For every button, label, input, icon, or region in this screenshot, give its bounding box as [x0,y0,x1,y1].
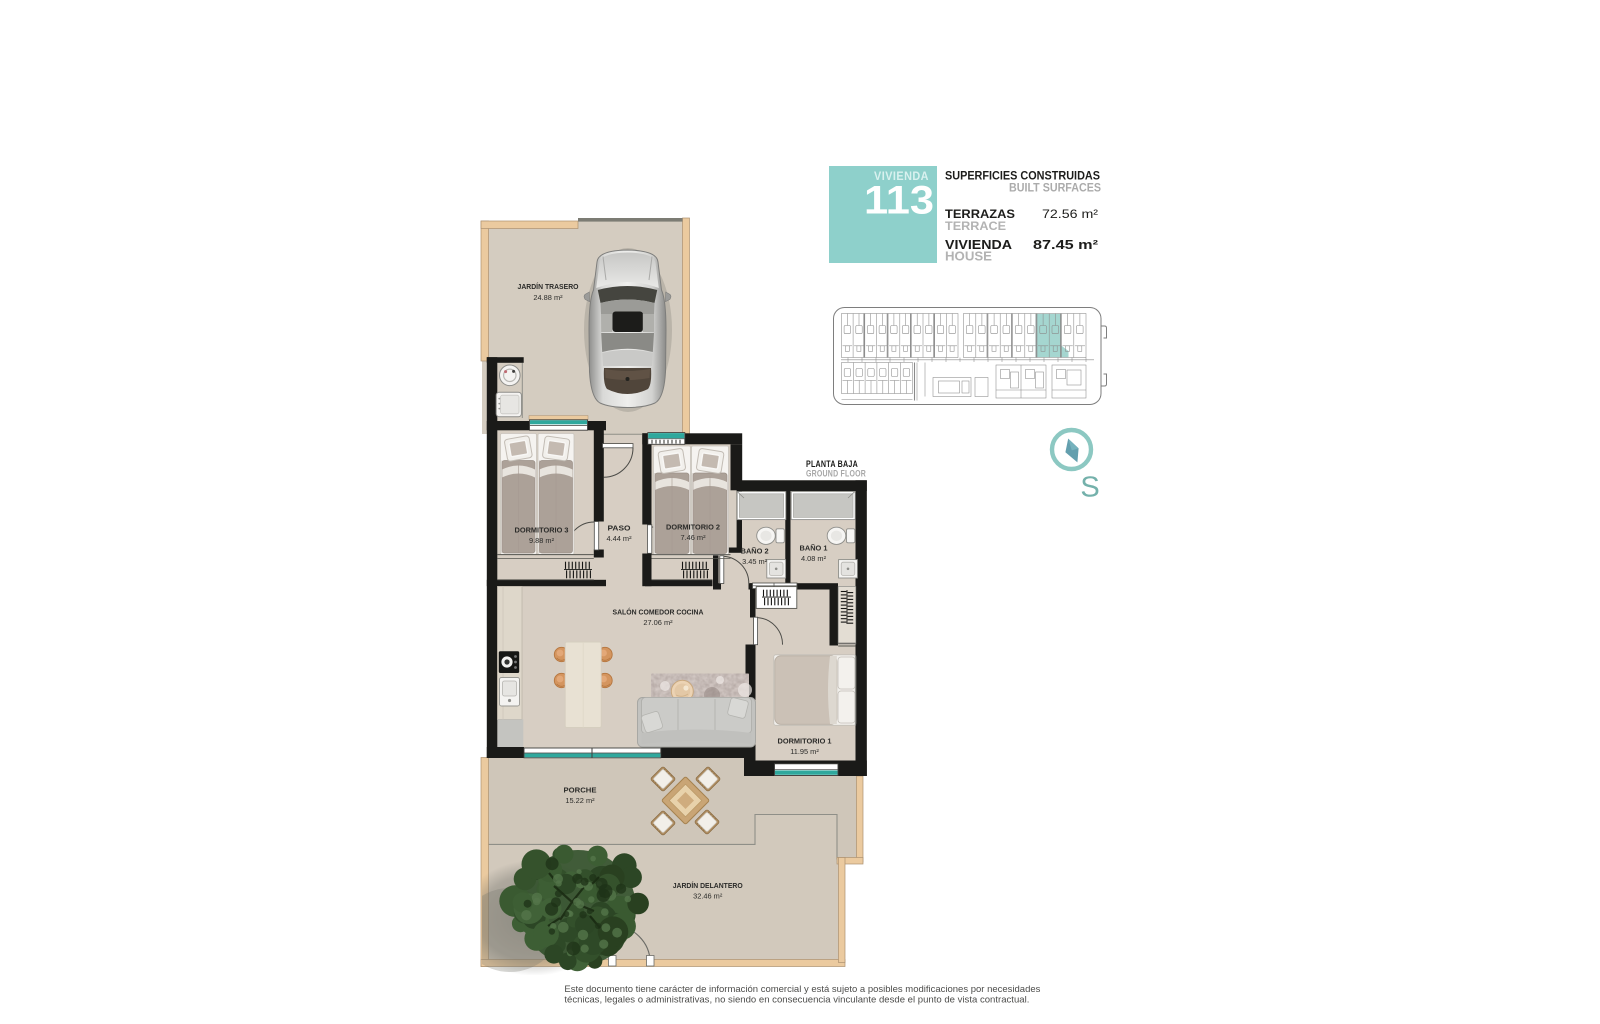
svg-text:4.08 m²: 4.08 m² [801,554,827,563]
svg-text:PORCHE: PORCHE [564,786,597,795]
svg-text:técnicas, legales o administra: técnicas, legales o administrativas, no … [564,995,1029,1005]
svg-text:JARDÍN DELANTERO: JARDÍN DELANTERO [673,881,743,890]
svg-text:DORMITORIO 1: DORMITORIO 1 [778,737,833,746]
svg-text:BAÑO 2: BAÑO 2 [741,547,769,556]
svg-text:DORMITORIO 2: DORMITORIO 2 [666,523,720,532]
svg-text:15.22 m²: 15.22 m² [565,796,595,805]
svg-text:3.45 m²: 3.45 m² [742,557,768,566]
svg-text:24.88 m²: 24.88 m² [533,293,563,302]
svg-text:PLANTA BAJA: PLANTA BAJA [806,459,858,469]
svg-text:TERRACE: TERRACE [945,219,1006,233]
svg-text:4.44 m²: 4.44 m² [606,534,632,543]
svg-text:32.46 m²: 32.46 m² [693,892,723,901]
svg-text:HOUSE: HOUSE [945,250,992,264]
svg-text:JARDÍN TRASERO: JARDÍN TRASERO [518,282,579,291]
svg-text:72.56 m²: 72.56 m² [1042,207,1098,221]
svg-text:SALÓN COMEDOR COCINA: SALÓN COMEDOR COCINA [613,608,704,617]
svg-text:DORMITORIO 3: DORMITORIO 3 [515,526,569,535]
svg-text:113: 113 [864,179,934,223]
svg-text:7.46 m²: 7.46 m² [680,533,706,542]
svg-text:GROUND FLOOR: GROUND FLOOR [806,469,866,479]
svg-text:9.88 m²: 9.88 m² [529,536,555,545]
svg-text:Este documento tiene carácter: Este documento tiene carácter de informa… [564,984,1040,994]
svg-text:87.45 m²: 87.45 m² [1033,237,1099,252]
svg-text:S: S [1080,472,1099,504]
svg-text:BAÑO 1: BAÑO 1 [800,544,829,553]
svg-text:PASO: PASO [608,524,631,533]
svg-text:27.06 m²: 27.06 m² [643,618,673,627]
svg-text:BUILT SURFACES: BUILT SURFACES [1009,182,1101,195]
svg-text:11.95 m²: 11.95 m² [790,747,819,756]
